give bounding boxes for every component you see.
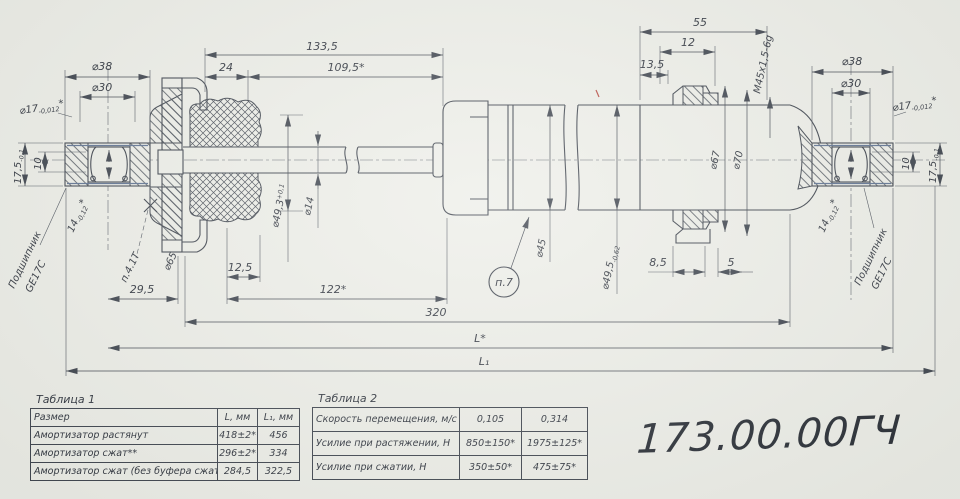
dim-d30-right: ⌀30 <box>841 77 862 90</box>
dim-d14: ⌀14 <box>302 196 317 217</box>
dim-d17-left: ⌀17-0,012* <box>19 98 65 118</box>
table1-row3-L: 284,5 <box>217 463 257 480</box>
table2-row2-v1: 850±150* <box>459 432 521 455</box>
dim-d38-right: ⌀38 <box>842 55 863 68</box>
scanned-engineering-drawing: п.7 133,5 24 109,5* 55 12 13,5 М45х1,5-6… <box>0 0 960 499</box>
dim-d65: ⌀65 <box>162 251 180 273</box>
table-row: Амортизатор растянут 418±2* 456 <box>31 426 299 444</box>
table1-row2-L1: 334 <box>257 445 299 462</box>
dim-d70: ⌀70 <box>731 150 746 171</box>
dim-L: L* <box>474 332 486 345</box>
table2-row3-v1: 350±50* <box>459 456 521 479</box>
shock-absorber-drawing: п.7 133,5 24 109,5* 55 12 13,5 М45х1,5-6… <box>0 0 960 395</box>
table1-row1-name: Амортизатор растянут <box>31 427 217 444</box>
cylinder-body <box>443 101 822 215</box>
table1-header-L1: L₁, мм <box>257 409 299 426</box>
dim-14-right: 14-0,12* <box>815 198 843 235</box>
table-forces: Скорость перемещения, м/с 0,105 0,314 Ус… <box>312 407 588 480</box>
table1-row1-L1: 456 <box>257 427 299 444</box>
dim-12-5: 12,5 <box>228 261 253 274</box>
table1-header-size: Размер <box>31 409 217 426</box>
table-row: Усилие при растяжении, Н 850±150* 1975±1… <box>313 431 587 455</box>
dim-d45: ⌀45 <box>534 238 549 259</box>
dim-d49-5: ⌀49,5-0,62 <box>600 244 622 291</box>
table1-caption: Таблица 1 <box>36 393 95 406</box>
table2-row1-name: Скорость перемещения, м/с <box>313 408 459 431</box>
table1-row3-name: Амортизатор сжат (без буфера сжатия) <box>31 463 217 480</box>
dim-d17-right: ⌀17-0,012* <box>892 95 938 115</box>
table1-row3-L1: 322,5 <box>257 463 299 480</box>
dim-10-left: 10 <box>33 157 44 170</box>
table-row: Амортизатор сжат** 296±2* 334 <box>31 444 299 462</box>
dim-24: 24 <box>219 61 233 74</box>
table-row: Скорость перемещения, м/с 0,105 0,314 <box>313 408 587 431</box>
dim-55: 55 <box>693 16 707 29</box>
table-row: Амортизатор сжат (без буфера сжатия) 284… <box>31 462 299 480</box>
dim-total-length: 133,5 <box>306 40 338 53</box>
dim-d30-left: ⌀30 <box>92 81 113 94</box>
table2-row2-v2: 1975±125* <box>521 432 587 455</box>
note-4-1: п.4.1Т <box>119 250 143 284</box>
table2-row2-name: Усилие при растяжении, Н <box>313 432 459 455</box>
table2-row3-v2: 475±75* <box>521 456 587 479</box>
table2-row1-v1: 0,105 <box>459 408 521 431</box>
table1-row2-L: 296±2* <box>217 445 257 462</box>
dim-13-5: 13,5 <box>640 58 665 71</box>
table1-row2-name: Амортизатор сжат** <box>31 445 217 462</box>
table2-caption: Таблица 2 <box>318 392 377 405</box>
left-rod-eye <box>65 143 150 186</box>
scan-artifact <box>596 90 599 97</box>
dim-8-5: 8,5 <box>649 256 667 269</box>
table2-row1-v2: 0,314 <box>521 408 587 431</box>
dim-14-left: 14-0,12* <box>64 198 92 235</box>
note-7-callout: п.7 <box>489 217 529 297</box>
dim-29-5: 29,5 <box>130 283 155 296</box>
dim-109: 109,5* <box>328 61 365 74</box>
dim-17-5-left: 17,5-0,1 <box>13 149 26 184</box>
dim-thread: М45х1,5-6g <box>752 34 775 94</box>
part-number: 173.00.00ГЧ <box>634 407 919 487</box>
table1-row1-L: 418±2* <box>217 427 257 444</box>
dim-17-5-right: 17,5-0,1 <box>928 148 941 183</box>
table-row: Усилие при сжатии, Н 350±50* 475±75* <box>313 455 587 479</box>
note-7-label: п.7 <box>495 276 513 289</box>
right-rod-eye <box>812 143 893 186</box>
dim-L1: L₁ <box>479 355 490 368</box>
dim-122: 122* <box>320 283 347 296</box>
dim-d67: ⌀67 <box>708 149 723 170</box>
dim-d38-left: ⌀38 <box>92 60 113 73</box>
dim-d49-3: ⌀49,3+0,1 <box>269 183 290 229</box>
dim-5: 5 <box>728 256 735 269</box>
table-dimensions: Размер L, мм L₁, мм Амортизатор растянут… <box>30 408 300 481</box>
dim-10-right: 10 <box>901 157 912 170</box>
dim-320: 320 <box>426 306 447 319</box>
table1-header-row: Размер L, мм L₁, мм <box>31 409 299 426</box>
table2-row3-name: Усилие при сжатии, Н <box>313 456 459 479</box>
dim-12: 12 <box>681 36 695 49</box>
table1-header-L: L, мм <box>217 409 257 426</box>
